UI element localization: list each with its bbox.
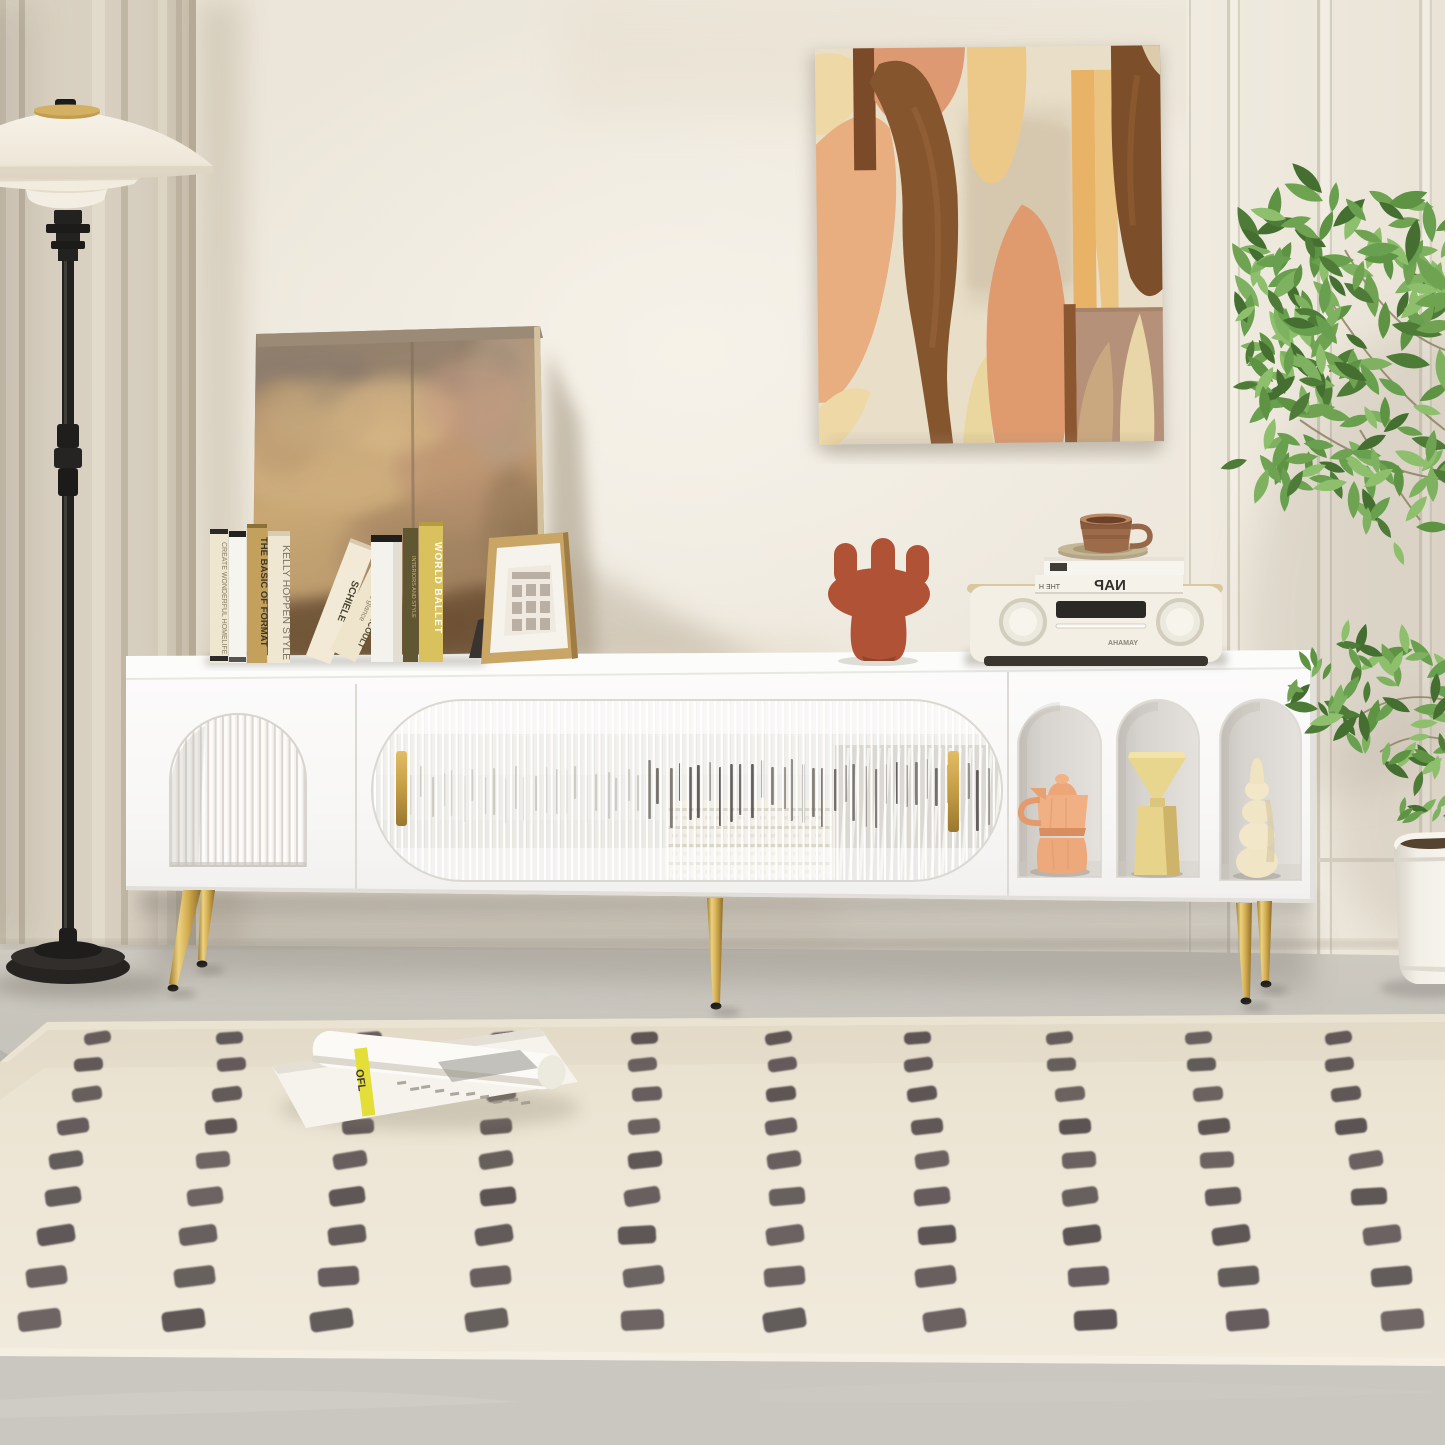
svg-text:WORLD BALLET: WORLD BALLET	[432, 542, 443, 634]
svg-text:YAMAHA: YAMAHA	[1108, 640, 1138, 647]
svg-text:CREATE WONDERFUL HOMELIFE: CREATE WONDERFUL HOMELIFE	[220, 542, 227, 655]
svg-text:KELLY HOPPEN STYLE: KELLY HOPPEN STYLE	[280, 545, 292, 660]
svg-text:INTERIORS AND STYLE: INTERIORS AND STYLE	[410, 556, 416, 618]
svg-text:THE BASIC OF FORMAT: THE BASIC OF FORMAT	[258, 537, 269, 647]
svg-text:THE H: THE H	[1039, 584, 1060, 591]
svg-text:NAP: NAP	[1094, 577, 1126, 594]
